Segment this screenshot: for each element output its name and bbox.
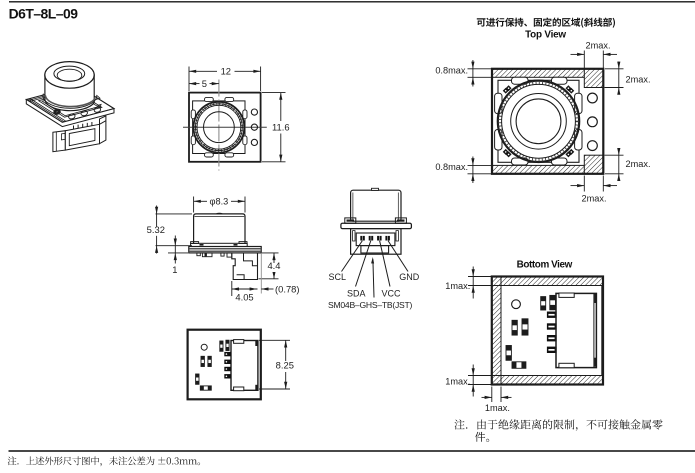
- svg-text:2max.: 2max.: [626, 159, 651, 169]
- svg-text:0.8max.: 0.8max.: [435, 65, 468, 75]
- svg-text:5: 5: [202, 78, 207, 89]
- svg-text:0.8max.: 0.8max.: [435, 162, 468, 172]
- svg-text:11.6: 11.6: [272, 122, 290, 133]
- svg-text:Bottom View: Bottom View: [517, 259, 573, 270]
- svg-text:1max.: 1max.: [445, 377, 470, 387]
- svg-text:2max.: 2max.: [626, 75, 651, 85]
- svg-text:1max.: 1max.: [445, 281, 470, 291]
- svg-text:1: 1: [172, 264, 177, 275]
- svg-text:2max.: 2max.: [585, 40, 610, 50]
- svg-text:4.05: 4.05: [235, 291, 253, 302]
- svg-text:SM04B–GHS–TB(JST): SM04B–GHS–TB(JST): [328, 300, 412, 310]
- svg-text:(0.78): (0.78): [275, 283, 300, 294]
- svg-text:D6T–8L–09: D6T–8L–09: [9, 6, 79, 22]
- svg-text:GND: GND: [399, 272, 420, 282]
- svg-text:8.25: 8.25: [276, 359, 294, 370]
- svg-text:VCC: VCC: [382, 288, 402, 298]
- svg-text:SDA: SDA: [347, 288, 366, 298]
- svg-text:5.32: 5.32: [147, 224, 165, 235]
- svg-text:Top View: Top View: [525, 30, 566, 41]
- svg-text:1max.: 1max.: [485, 403, 510, 413]
- svg-text:φ8.3: φ8.3: [210, 196, 229, 206]
- svg-text:SCL: SCL: [329, 272, 347, 282]
- svg-text:2max.: 2max.: [581, 194, 606, 204]
- svg-text:12: 12: [221, 66, 231, 77]
- svg-text:4.4: 4.4: [267, 260, 280, 271]
